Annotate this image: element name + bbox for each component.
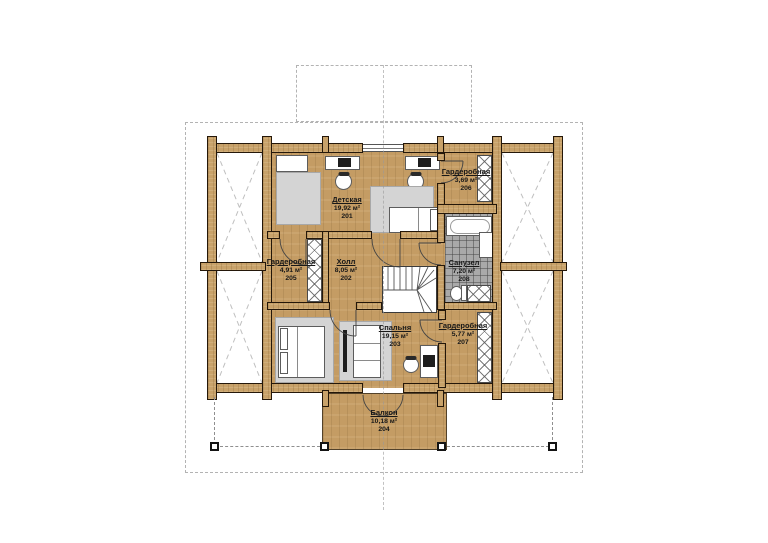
x-brace-panel — [217, 153, 262, 262]
partition-wall — [322, 231, 329, 308]
partition-wall — [437, 204, 497, 214]
dormer-outline — [296, 65, 472, 122]
x-brace-panel — [217, 271, 262, 383]
pillow — [280, 352, 288, 374]
chair — [335, 173, 352, 190]
wardrobe — [276, 172, 321, 225]
partition-wall — [438, 310, 446, 320]
toilet-tank — [461, 285, 467, 301]
chair — [403, 357, 419, 373]
room-name: Гардеробная — [442, 168, 491, 177]
sink — [479, 232, 493, 258]
post — [548, 442, 557, 451]
room-area: 19,15 м² — [379, 333, 411, 342]
room-number: 202 — [335, 275, 357, 284]
room-name: Холл — [335, 258, 357, 267]
room-number: 206 — [442, 185, 491, 194]
blanket-line — [418, 208, 419, 232]
room-name: Балкон — [370, 409, 397, 418]
room-label-sanuzel-208: Санузел 7,20 м² 208 — [449, 259, 480, 285]
room-label-balkon-204: Балкон 10,18 м² 204 — [370, 409, 397, 435]
partition-wall — [438, 343, 446, 388]
chair-back — [406, 356, 417, 360]
blanket-line — [297, 327, 298, 377]
closet — [276, 155, 308, 172]
washing-machine — [467, 285, 491, 302]
laptop — [338, 158, 351, 167]
chair-back — [338, 172, 349, 176]
room-number: 208 — [449, 276, 480, 285]
exterior-wall-bottom — [207, 383, 363, 393]
room-label-garderobnaya-206: Гардеробная 3,69 м² 206 — [442, 168, 491, 194]
room-area: 19,92 м² — [332, 205, 362, 214]
laptop — [423, 355, 435, 367]
post — [320, 442, 329, 451]
x-brace-panel — [502, 153, 553, 262]
exterior-wall-top — [403, 143, 563, 153]
room-number: 205 — [267, 275, 316, 284]
wing-beam — [500, 262, 567, 271]
room-number: 204 — [370, 426, 397, 435]
drawer-line — [354, 343, 380, 344]
wing-beam — [200, 262, 266, 271]
room-label-garderobnaya-205: Гардеробная 4,91 м² 205 — [267, 258, 316, 284]
tv — [343, 330, 347, 372]
pillow — [280, 328, 288, 350]
room-area: 3,69 м² — [442, 177, 491, 186]
post — [210, 442, 219, 451]
post — [437, 442, 446, 451]
room-name: Санузел — [449, 259, 480, 268]
room-name: Детская — [332, 196, 362, 205]
partition-wall — [306, 231, 372, 239]
partition-wall — [356, 302, 382, 310]
terrace-guide-line — [552, 397, 553, 445]
room-name: Гардеробная — [439, 322, 488, 331]
room-area: 4,91 м² — [267, 267, 316, 276]
room-name: Спальня — [379, 324, 411, 333]
floor-plan: Детская 19,92 м² 201 Гардеробная 3,69 м²… — [0, 0, 768, 543]
log-end — [437, 390, 444, 407]
x-brace-panel — [502, 271, 553, 383]
terrace-guide-line — [214, 397, 215, 445]
dresser — [353, 325, 381, 378]
room-area: 10,18 м² — [370, 418, 397, 427]
exterior-wall-bottom — [403, 383, 563, 393]
partition-wall — [267, 302, 330, 310]
partition-wall — [437, 153, 445, 161]
laptop — [418, 158, 431, 167]
room-label-spalnya-203: Спальня 19,15 м² 203 — [379, 324, 411, 350]
partition-wall — [267, 231, 280, 239]
log-end — [322, 136, 329, 153]
room-name: Гардеробная — [267, 258, 316, 267]
partition-wall — [437, 302, 497, 310]
terrace-guide-line — [220, 446, 320, 447]
room-number: 201 — [332, 213, 362, 222]
room-label-detskaya-201: Детская 19,92 м² 201 — [332, 196, 362, 222]
room-area: 7,20 м² — [449, 268, 480, 277]
drawer-line — [354, 360, 380, 361]
chair-back — [410, 172, 421, 176]
room-number: 203 — [379, 341, 411, 350]
terrace-guide-line — [447, 446, 549, 447]
room-area: 8,05 м² — [335, 267, 357, 276]
staircase — [382, 266, 437, 313]
bathroom-wall — [437, 265, 445, 310]
exterior-wall-top — [207, 143, 363, 153]
room-number: 207 — [439, 339, 488, 348]
room-label-holl-202: Холл 8,05 м² 202 — [335, 258, 357, 284]
center-axis-line — [383, 65, 384, 510]
room-area: 5,77 м² — [439, 331, 488, 340]
log-end — [437, 136, 444, 153]
room-label-garderobnaya-207: Гардеробная 5,77 м² 207 — [439, 322, 488, 348]
log-end — [322, 390, 329, 407]
